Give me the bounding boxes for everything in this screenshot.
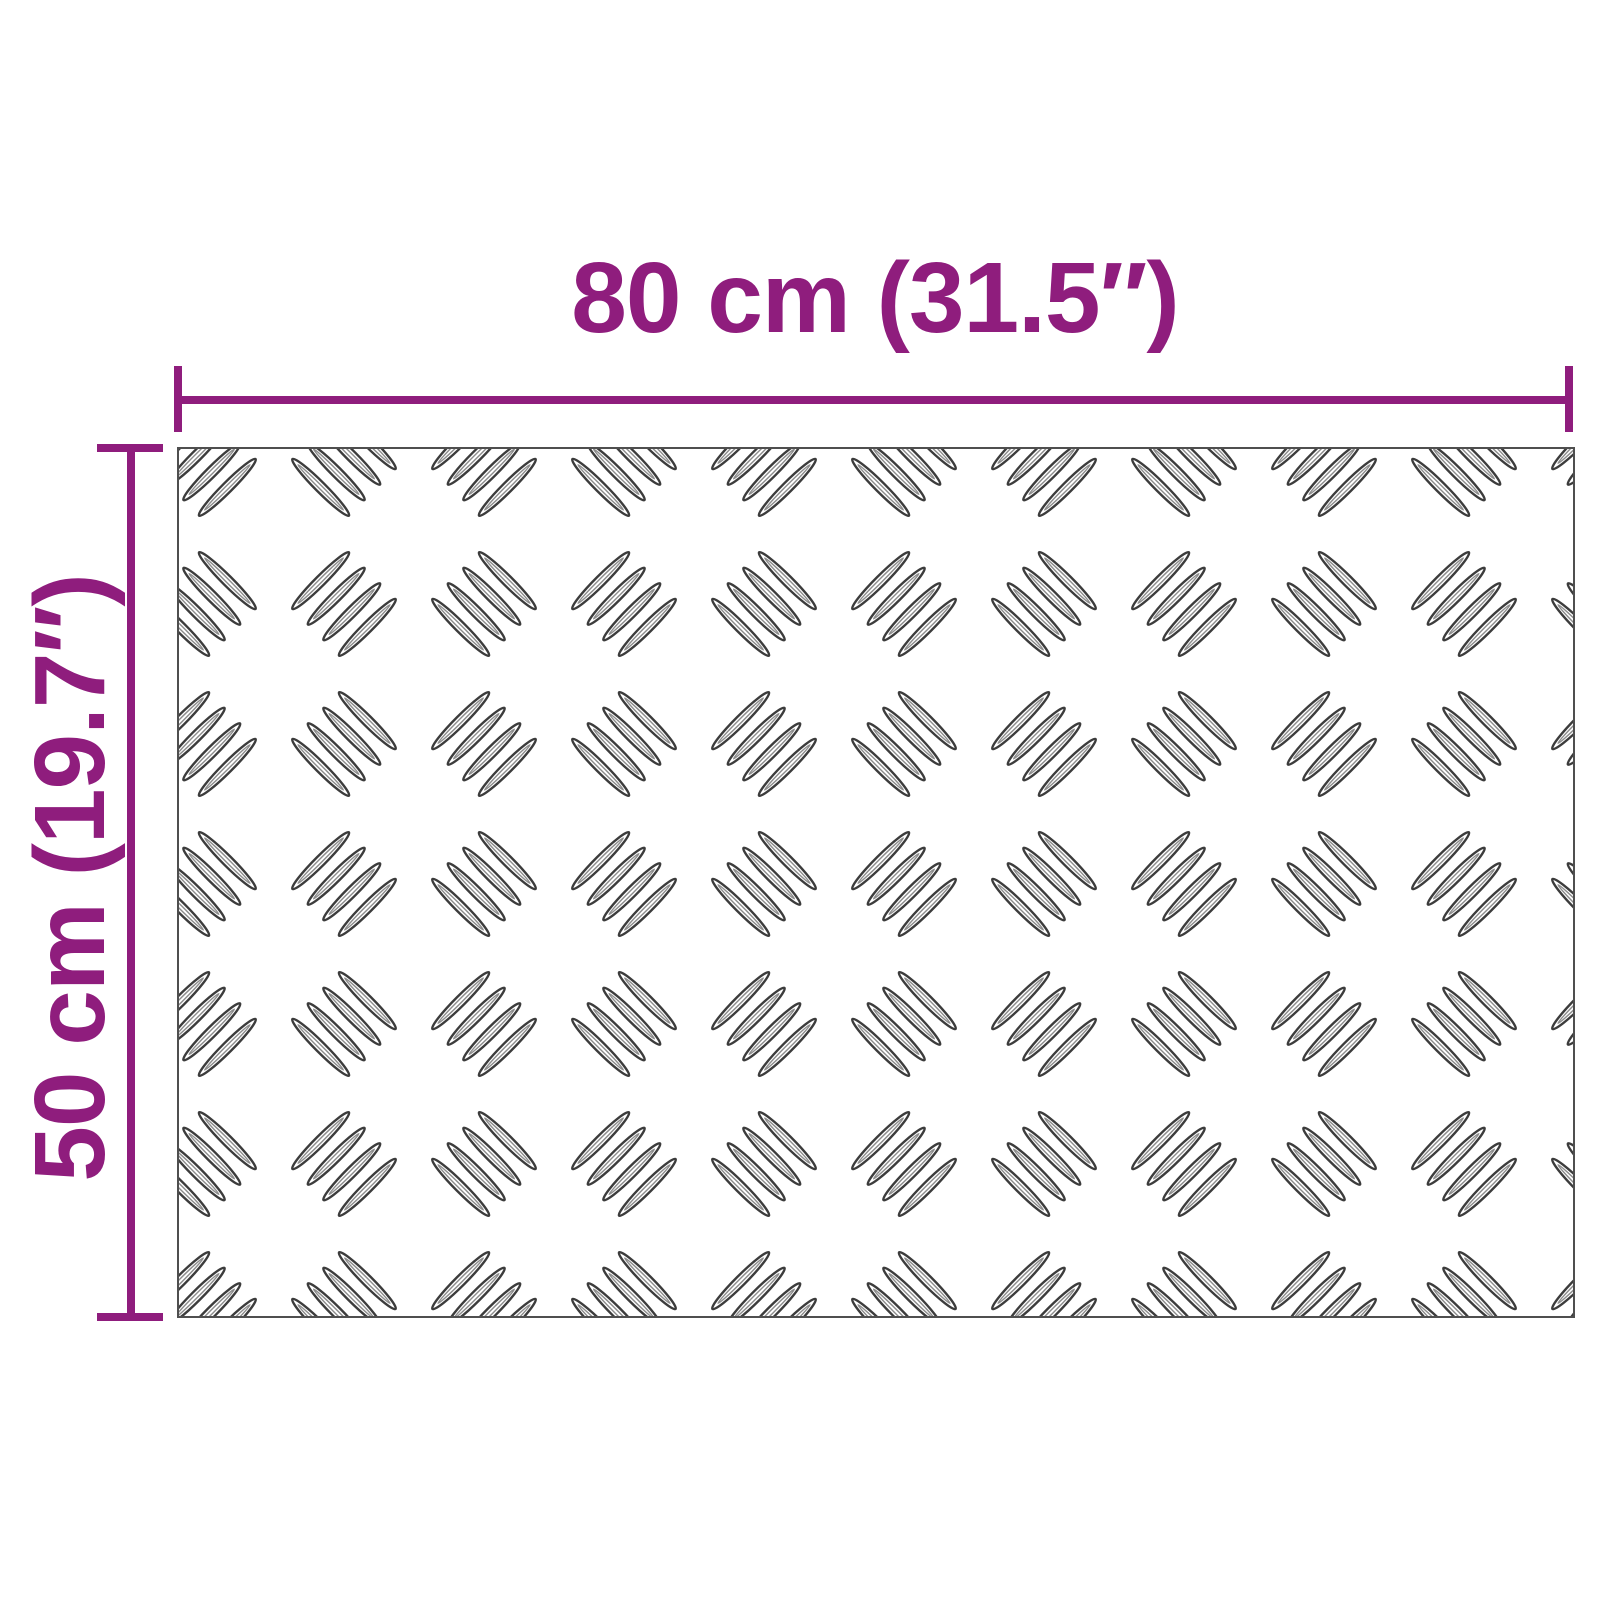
width-dimension-tick-right: [1565, 366, 1573, 432]
height-dimension-line: [127, 447, 135, 1318]
checker-plate-pattern-svg: [179, 449, 1573, 1316]
width-dimension-tick-left: [174, 366, 182, 432]
height-dimension-tick-top: [97, 444, 163, 452]
width-dimension-label: 80 cm (31.5″): [177, 248, 1573, 348]
height-dimension-tick-bottom: [97, 1313, 163, 1321]
product-dimension-diagram: 80 cm (31.5″) 50 cm (19.7″): [0, 0, 1600, 1600]
checker-plate: [177, 447, 1575, 1318]
height-dimension-label: 50 cm (19.7″): [20, 574, 120, 1181]
width-dimension-line: [176, 396, 1573, 404]
